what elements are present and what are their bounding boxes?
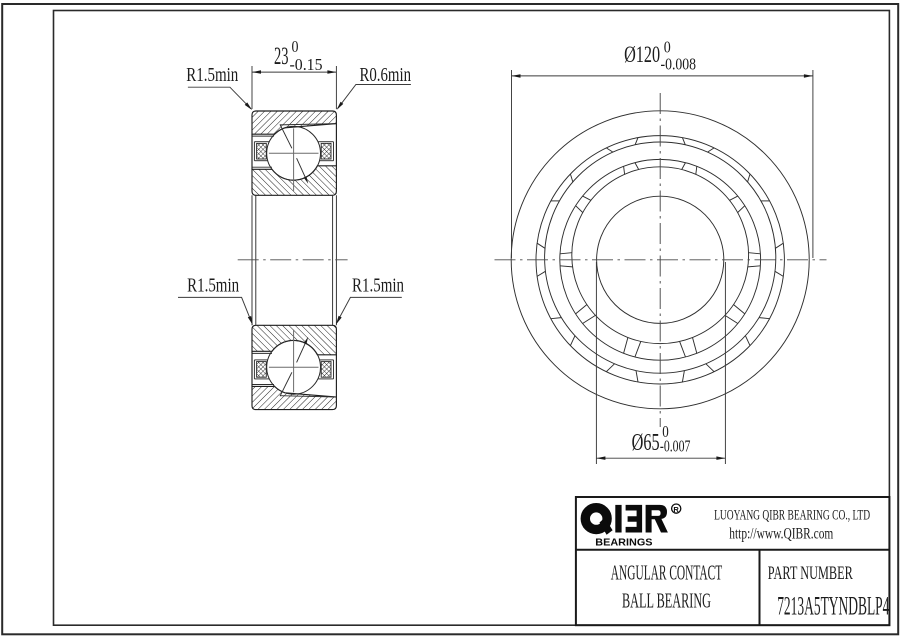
svg-text:R1.5min: R1.5min <box>352 275 404 297</box>
svg-text:Ø65: Ø65 <box>632 429 660 456</box>
svg-text:0: 0 <box>292 37 299 56</box>
svg-text:R1.5min: R1.5min <box>187 275 239 297</box>
svg-text:PART NUMBER: PART NUMBER <box>768 563 853 584</box>
svg-text:BALL BEARING: BALL BEARING <box>622 588 711 612</box>
svg-text:7213A5TYNDBLP4: 7213A5TYNDBLP4 <box>777 591 889 620</box>
svg-text:-0.007: -0.007 <box>660 437 691 456</box>
svg-text:R0.6min: R0.6min <box>360 64 412 86</box>
svg-text:23: 23 <box>274 43 289 70</box>
svg-text:R1.5min: R1.5min <box>186 64 238 86</box>
svg-text:Ø120: Ø120 <box>624 42 660 67</box>
svg-text:R: R <box>673 505 679 514</box>
svg-text:-0.008: -0.008 <box>661 55 697 74</box>
svg-text:LUOYANG QIBR BEARING CO., LTD: LUOYANG QIBR BEARING CO., LTD <box>714 508 870 524</box>
svg-text:http://www.QIBR.com: http://www.QIBR.com <box>729 526 833 543</box>
svg-text:ANGULAR CONTACT: ANGULAR CONTACT <box>611 561 722 585</box>
svg-text:BEARINGS: BEARINGS <box>595 537 652 549</box>
svg-text:-0.15: -0.15 <box>290 55 323 74</box>
